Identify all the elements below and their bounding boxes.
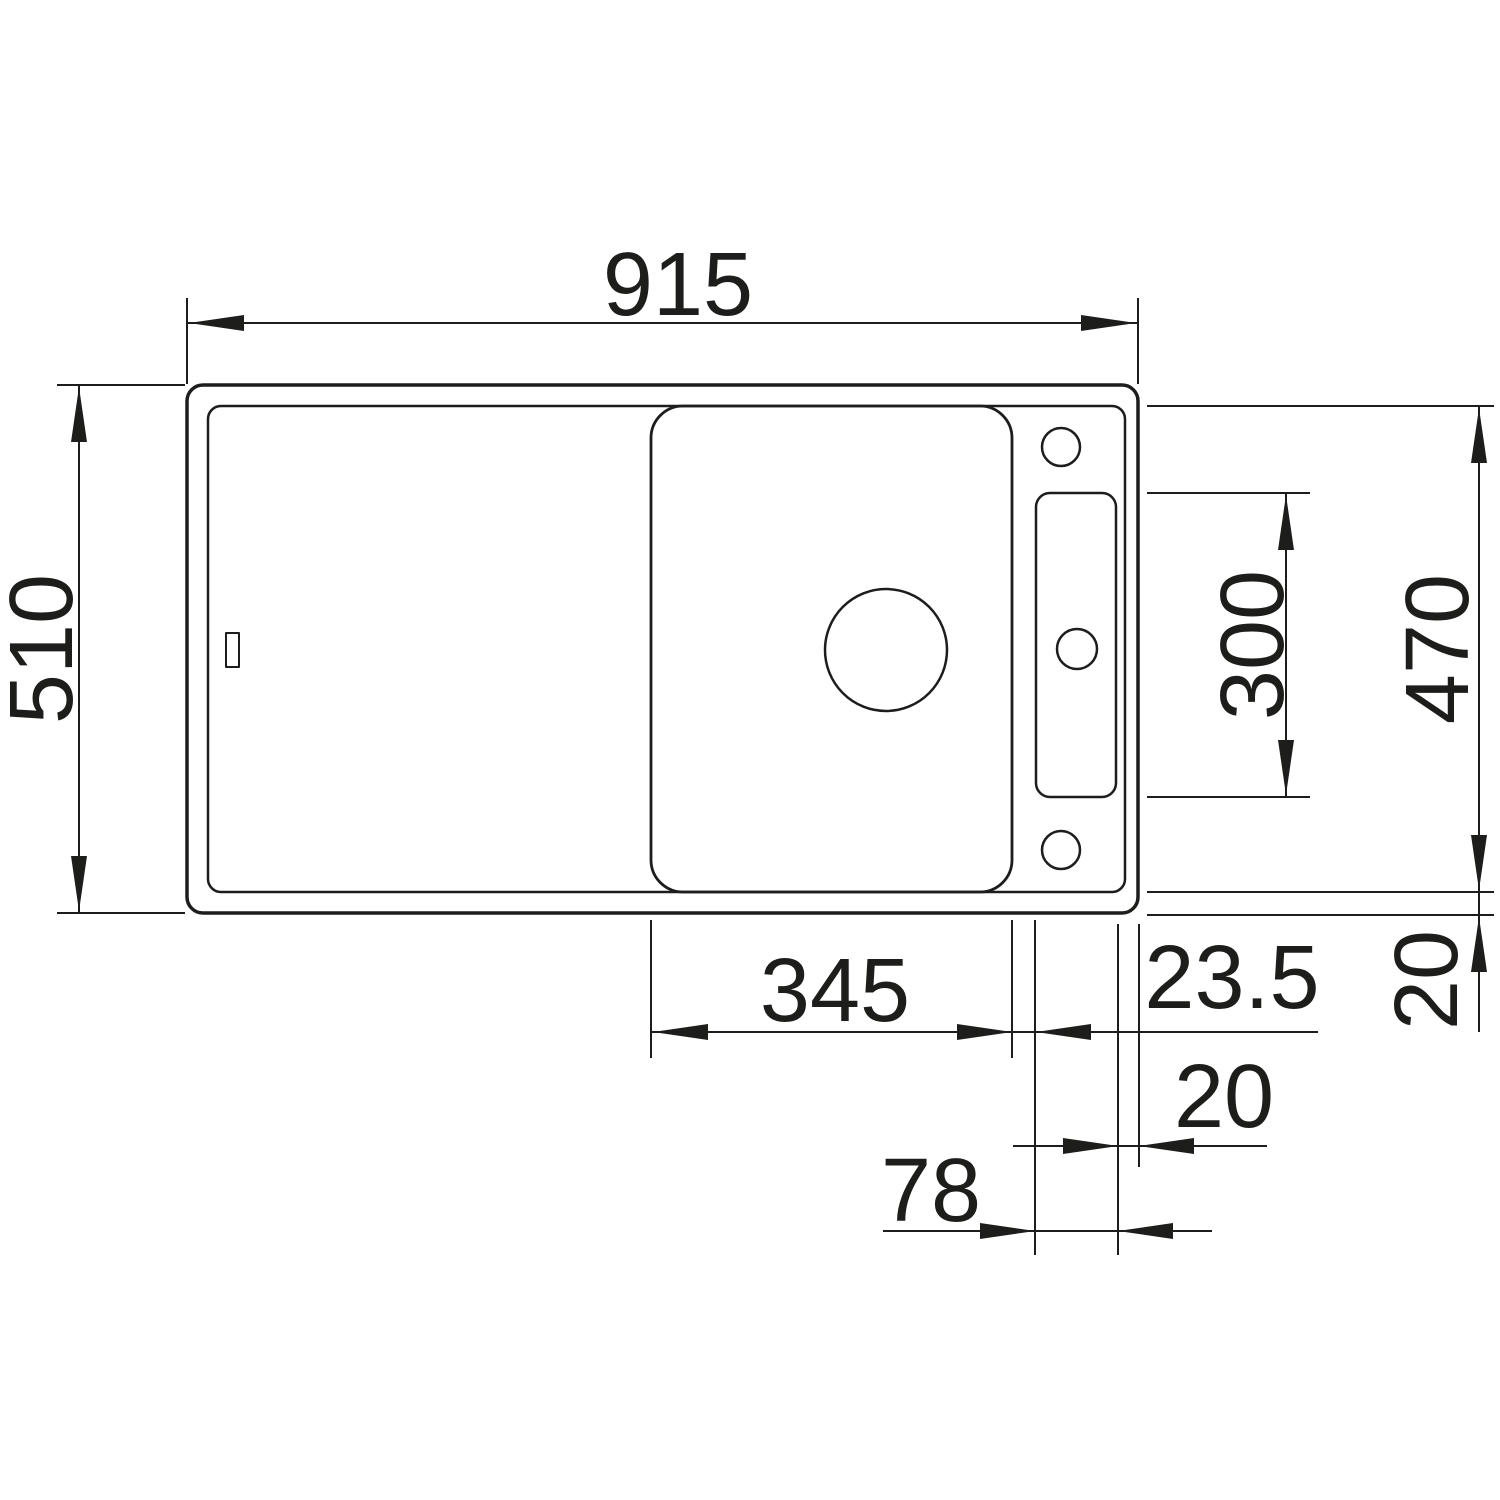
dim-right-rim-label: 20 [1174,1047,1274,1147]
dim-bottom-rim-label: 20 [1377,930,1477,1030]
extension-lines [57,298,1494,1255]
dim-overall-depth-label: 510 [0,574,92,724]
dim-bowl-rail-gap-label: 23.5 [1144,928,1319,1028]
main-bowl [651,406,1012,892]
arrowhead [1471,835,1487,890]
dim-rail-length-label: 300 [1203,570,1303,720]
sink-outer-outline [187,385,1138,913]
arrowhead [1081,315,1136,331]
arrowhead [71,387,87,442]
arrowhead [957,1024,1012,1040]
drawing-canvas: 915 510 470 300 345 23.5 20 20 78 [0,0,1500,1500]
arrowhead [1278,740,1294,795]
arrowhead [1471,408,1487,463]
dimension-lines [71,315,1487,1239]
accessory-rail [1036,493,1116,797]
sink-dimension-drawing: 915 510 470 300 345 23.5 20 20 78 [0,0,1500,1500]
arrowhead [980,1223,1035,1239]
arrowhead [1036,1024,1091,1040]
arrowhead [653,1024,708,1040]
dim-bowl-width-label: 345 [760,941,910,1041]
drain-hole [825,589,947,711]
arrowhead [1278,495,1294,550]
tap-hole-bottom [1042,831,1080,869]
arrowhead [1063,1138,1118,1154]
rail-knob-hole [1057,629,1097,669]
sink-body [187,385,1138,913]
dim-inner-depth-label: 470 [1388,574,1488,724]
arrowhead [1118,1223,1173,1239]
tap-hole-top [1042,428,1080,466]
drainboard-slot [226,633,239,667]
dim-overall-width-label: 915 [603,235,753,335]
sink-inner-rim [208,406,1125,892]
arrowhead [189,315,244,331]
arrowhead [71,856,87,911]
dim-rail-width-label: 78 [881,1141,981,1241]
